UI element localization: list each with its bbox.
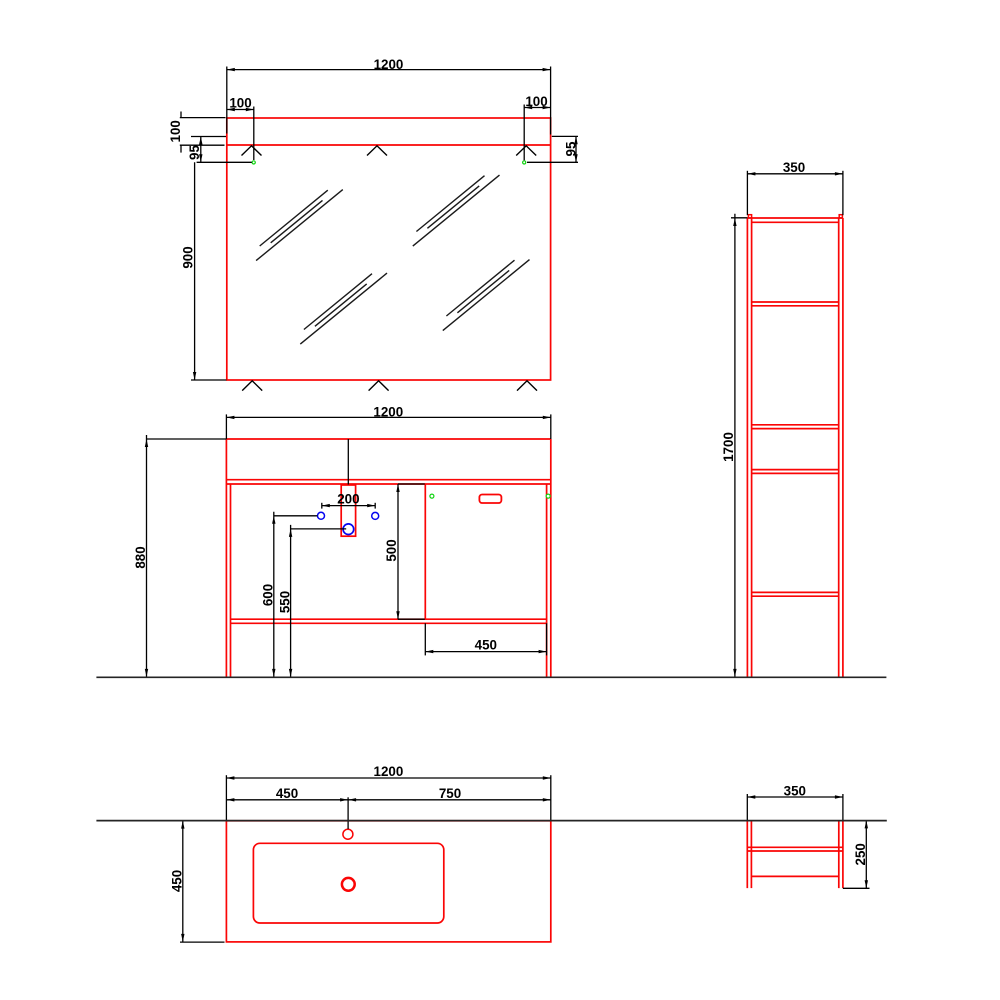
svg-text:900: 900	[181, 246, 196, 268]
svg-text:1200: 1200	[374, 764, 404, 779]
svg-text:880: 880	[133, 546, 148, 568]
svg-text:1200: 1200	[374, 57, 404, 72]
svg-text:350: 350	[783, 160, 805, 175]
svg-text:750: 750	[439, 786, 461, 801]
svg-text:1700: 1700	[721, 432, 736, 462]
svg-text:600: 600	[261, 584, 276, 606]
svg-text:450: 450	[276, 786, 298, 801]
svg-text:100: 100	[229, 95, 251, 110]
svg-text:100: 100	[168, 120, 183, 142]
svg-text:95: 95	[563, 141, 578, 156]
svg-text:200: 200	[337, 491, 359, 506]
svg-text:500: 500	[384, 539, 399, 561]
svg-text:450: 450	[170, 870, 185, 892]
svg-text:95: 95	[187, 145, 202, 160]
svg-text:350: 350	[784, 784, 806, 799]
svg-text:1200: 1200	[373, 405, 403, 420]
svg-text:550: 550	[278, 591, 293, 613]
svg-text:450: 450	[475, 637, 497, 652]
svg-text:250: 250	[853, 843, 868, 865]
svg-text:100: 100	[525, 94, 547, 109]
